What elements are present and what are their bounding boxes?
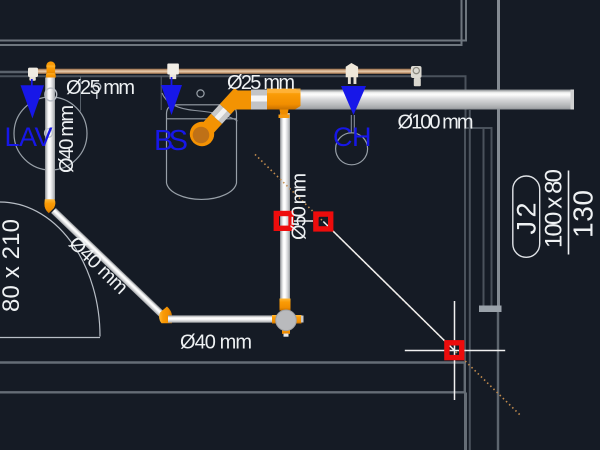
svg-text:Ø40 mm: Ø40 mm: [56, 105, 78, 173]
svg-text:LAV: LAV: [5, 122, 53, 152]
svg-text:Ø100 mm: Ø100 mm: [398, 112, 474, 134]
svg-text:BS: BS: [154, 125, 188, 157]
svg-text:J2: J2: [512, 203, 542, 235]
svg-text:130: 130: [568, 190, 599, 238]
svg-text:Ø25 mm: Ø25 mm: [227, 72, 295, 94]
svg-text:100 x 80: 100 x 80: [541, 169, 568, 248]
svg-text:CH: CH: [333, 122, 372, 152]
svg-text:80 x 210: 80 x 210: [0, 219, 25, 312]
svg-text:Ø25 mm: Ø25 mm: [66, 77, 135, 99]
svg-text:Ø50 mm: Ø50 mm: [289, 173, 311, 240]
svg-text:Ø40 mm: Ø40 mm: [180, 332, 252, 354]
